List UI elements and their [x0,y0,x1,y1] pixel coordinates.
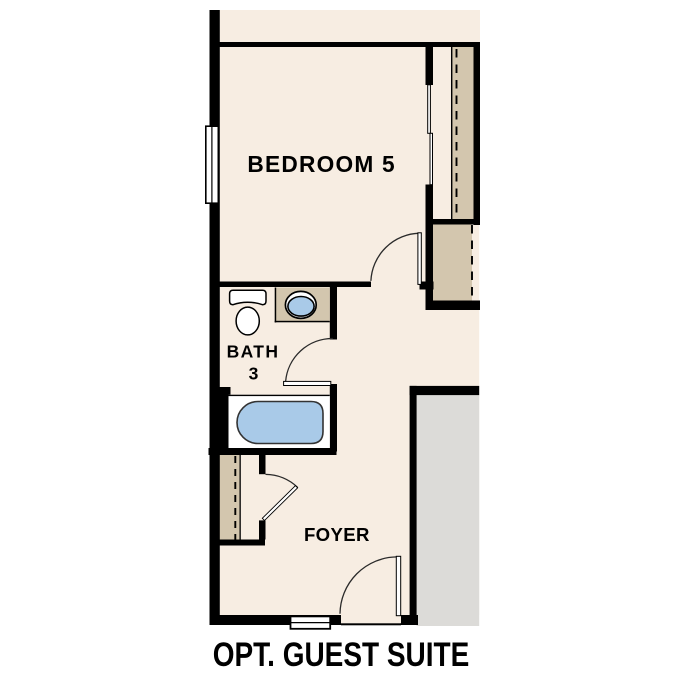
svg-text:FOYER: FOYER [304,524,370,545]
svg-text:3: 3 [249,363,259,383]
svg-text:BEDROOM 5: BEDROOM 5 [247,151,394,177]
svg-text:OPT. GUEST SUITE: OPT. GUEST SUITE [213,636,470,674]
